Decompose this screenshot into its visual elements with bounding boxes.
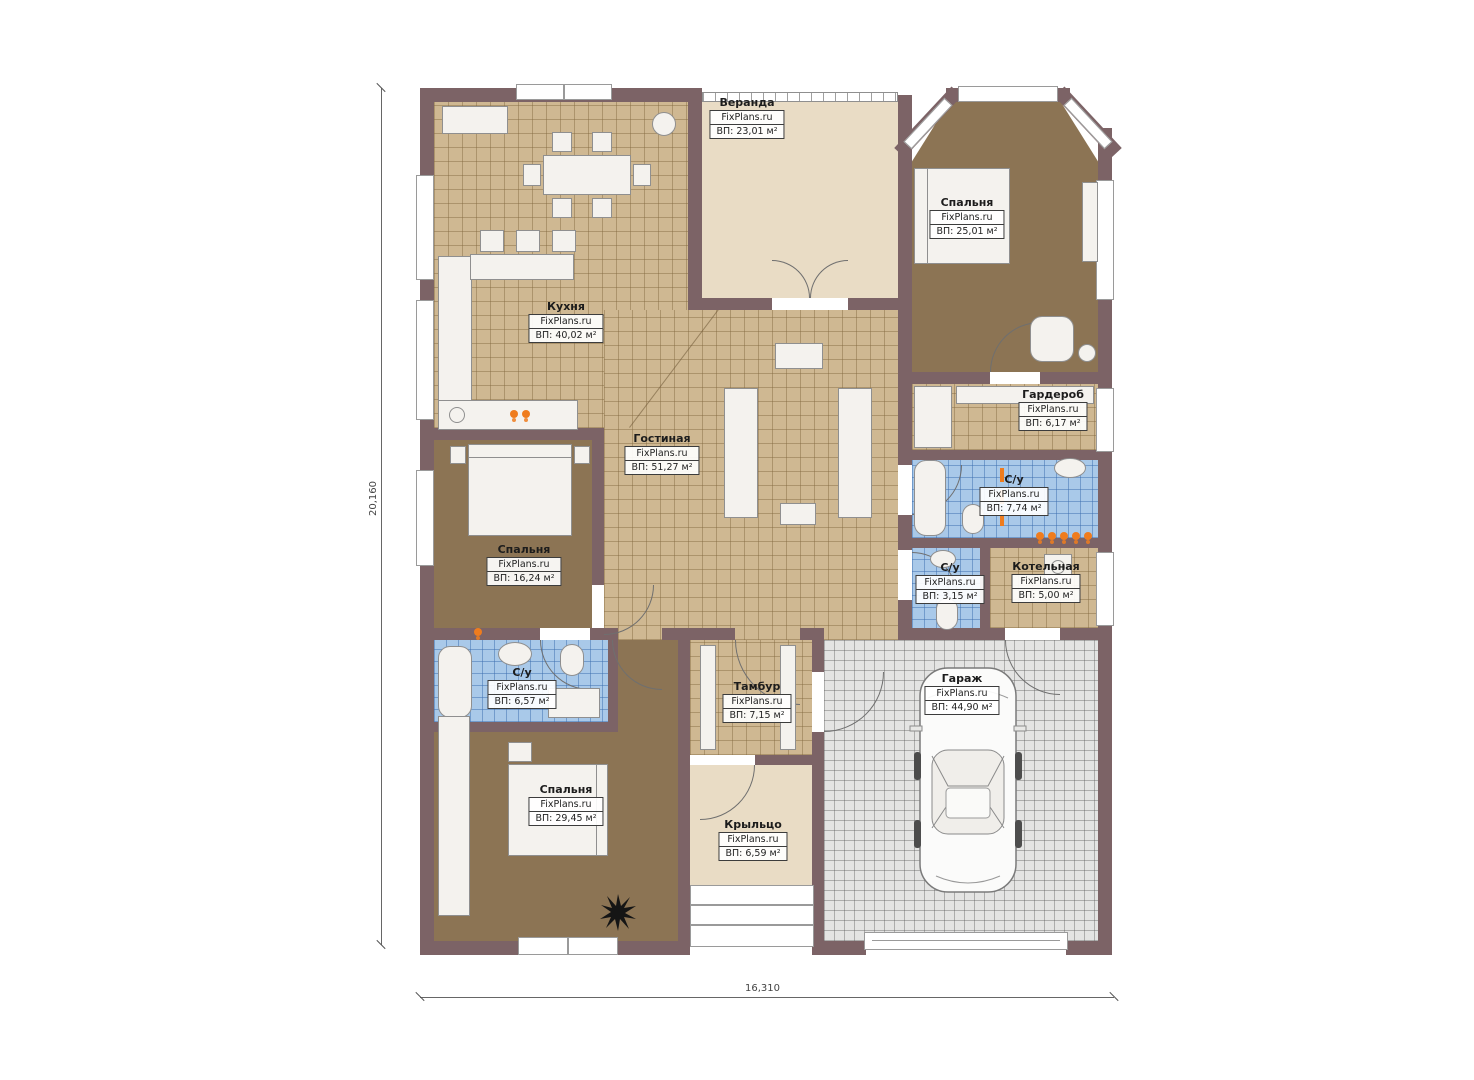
dresser (508, 742, 532, 762)
room-name: Крыльцо (718, 818, 787, 831)
watermark: FixPlans.ru (719, 833, 786, 847)
sofa (724, 388, 758, 518)
sink-icon (449, 407, 465, 423)
sofa (838, 388, 872, 518)
bathtub (438, 646, 472, 718)
room-name: Спальня (929, 196, 1004, 209)
wall (898, 310, 912, 465)
side-table (1078, 344, 1096, 362)
watermark: FixPlans.ru (710, 111, 783, 125)
room-area: ВП: 44,90 м² (925, 701, 998, 714)
room-label-boiler: Котельная FixPlans.ru ВП: 5,00 м² (1011, 560, 1080, 603)
wall (905, 450, 1112, 460)
room-label-living: Гостиная FixPlans.ru ВП: 51,27 м² (624, 432, 699, 475)
room-area: ВП: 5,00 м² (1012, 589, 1079, 602)
room-area: ВП: 7,15 м² (723, 709, 790, 722)
armchair (1030, 316, 1074, 362)
room-name: Веранда (709, 96, 784, 109)
wall (1040, 372, 1112, 384)
room-area: ВП: 6,17 м² (1019, 417, 1086, 430)
window (518, 937, 568, 955)
bar-stool (480, 230, 504, 252)
bed-headboard (468, 444, 572, 458)
toilet-icon (560, 644, 584, 676)
wall (678, 628, 690, 955)
room-label-vestibule: Тамбур FixPlans.ru ВП: 7,15 м² (722, 680, 791, 723)
wall (818, 941, 866, 955)
chair (633, 164, 651, 186)
chair (592, 132, 612, 152)
dimension-line-vertical (381, 88, 382, 945)
window (1096, 552, 1114, 626)
room-area: ВП: 6,59 м² (719, 847, 786, 860)
garage-door (864, 932, 1068, 950)
room-label-kitchen: Кухня FixPlans.ru ВП: 40,02 м² (528, 300, 603, 343)
wall (688, 88, 702, 310)
watermark: FixPlans.ru (925, 687, 998, 701)
room-name: Котельная (1011, 560, 1080, 573)
porch-step (690, 925, 814, 947)
watermark: FixPlans.ru (916, 576, 983, 590)
chair (523, 164, 541, 186)
window (958, 86, 1058, 102)
garage-door-line (872, 940, 1060, 941)
room-area: ВП: 40,02 м² (529, 329, 602, 342)
window (1096, 388, 1114, 452)
wall (1066, 941, 1112, 955)
watermark: FixPlans.ru (488, 681, 555, 695)
watermark: FixPlans.ru (625, 447, 698, 461)
closet-shelves (914, 386, 952, 448)
wardrobe (1082, 182, 1098, 262)
watermark: FixPlans.ru (723, 695, 790, 709)
bed-headboard (914, 168, 928, 264)
nightstand (574, 446, 590, 464)
bar-stool (552, 230, 576, 252)
wall (848, 298, 912, 310)
watermark: FixPlans.ru (487, 558, 560, 572)
room-area: ВП: 16,24 м² (487, 572, 560, 585)
room-name: Спальня (486, 543, 561, 556)
room-name: Кухня (528, 300, 603, 313)
room-area: ВП: 3,15 м² (916, 590, 983, 603)
room-area: ВП: 29,45 м² (529, 812, 602, 825)
room-label-wardrobe: Гардероб FixPlans.ru ВП: 6,17 м² (1018, 388, 1087, 431)
room-label-porch: Крыльцо FixPlans.ru ВП: 6,59 м² (718, 818, 787, 861)
watermark: FixPlans.ru (1019, 403, 1086, 417)
chair (552, 132, 572, 152)
dining-table (543, 155, 631, 195)
watermark: FixPlans.ru (529, 798, 602, 812)
wall (905, 628, 1005, 640)
room-label-bathroom2: С/у FixPlans.ru ВП: 3,15 м² (915, 561, 984, 604)
wall (688, 298, 772, 310)
chair (592, 198, 612, 218)
room-name: Гостиная (624, 432, 699, 445)
watermark: FixPlans.ru (980, 488, 1047, 502)
room-name: С/у (979, 473, 1048, 486)
kitchen-island (470, 254, 574, 280)
wall (1060, 628, 1112, 640)
closet (700, 645, 716, 750)
heating-manifold-icon (1036, 532, 1092, 540)
radiator-icon (510, 410, 530, 418)
window (568, 937, 618, 955)
room-area: ВП: 25,01 м² (930, 225, 1003, 238)
bar-stool (516, 230, 540, 252)
room-name: Тамбур (722, 680, 791, 693)
room-name: Гардероб (1018, 388, 1087, 401)
wardrobe (438, 716, 470, 916)
sink-icon (498, 642, 532, 666)
porch-step (690, 885, 814, 905)
sink-icon (1054, 458, 1086, 478)
dimension-line-horizontal (420, 997, 1114, 998)
room-label-bedroom1: Спальня FixPlans.ru ВП: 25,01 м² (929, 196, 1004, 239)
room-area: ВП: 7,74 м² (980, 502, 1047, 515)
watermark: FixPlans.ru (1012, 575, 1079, 589)
kitchen-cabinet (442, 106, 508, 134)
wall (592, 428, 604, 585)
window (416, 175, 434, 280)
coffee-table (780, 503, 816, 525)
window (1096, 180, 1114, 300)
room-label-bedroom2: Спальня FixPlans.ru ВП: 16,24 м² (486, 543, 561, 586)
window (564, 84, 612, 100)
plant-icon (598, 892, 638, 932)
room-name: С/у (487, 666, 556, 679)
chair (552, 198, 572, 218)
nightstand (450, 446, 466, 464)
porch-step (690, 905, 814, 925)
radiator-icon (474, 628, 482, 636)
room-label-garage: Гараж FixPlans.ru ВП: 44,90 м² (924, 672, 999, 715)
room-label-bathroom1: С/у FixPlans.ru ВП: 7,74 м² (979, 473, 1048, 516)
window (516, 84, 564, 100)
watermark: FixPlans.ru (930, 211, 1003, 225)
watermark: FixPlans.ru (529, 315, 602, 329)
dimension-height: 20,160 (368, 481, 379, 516)
bathtub (914, 460, 946, 536)
window (416, 470, 434, 566)
room-name: С/у (915, 561, 984, 574)
room-label-bedroom3: Спальня FixPlans.ru ВП: 29,45 м² (528, 783, 603, 826)
room-label-veranda: Веранда FixPlans.ru ВП: 23,01 м² (709, 96, 784, 139)
floor-plan-canvas: Веранда FixPlans.ru ВП: 23,01 м² Спальня… (0, 0, 1474, 1080)
wall (662, 628, 735, 640)
wall (905, 372, 990, 384)
dimension-width: 16,310 (745, 983, 780, 994)
room-name: Гараж (924, 672, 999, 685)
tv-console (775, 343, 823, 369)
room-area: ВП: 51,27 м² (625, 461, 698, 474)
window (416, 300, 434, 420)
corner-sink-icon (652, 112, 676, 136)
room-label-bathroom3: С/у FixPlans.ru ВП: 6,57 м² (487, 666, 556, 709)
wall (755, 755, 812, 765)
room-area: ВП: 23,01 м² (710, 125, 783, 138)
room-name: Спальня (528, 783, 603, 796)
kitchen-counter (438, 256, 472, 406)
room-area: ВП: 6,57 м² (488, 695, 555, 708)
wall (800, 628, 824, 640)
wall (590, 628, 604, 640)
wall (898, 95, 912, 310)
